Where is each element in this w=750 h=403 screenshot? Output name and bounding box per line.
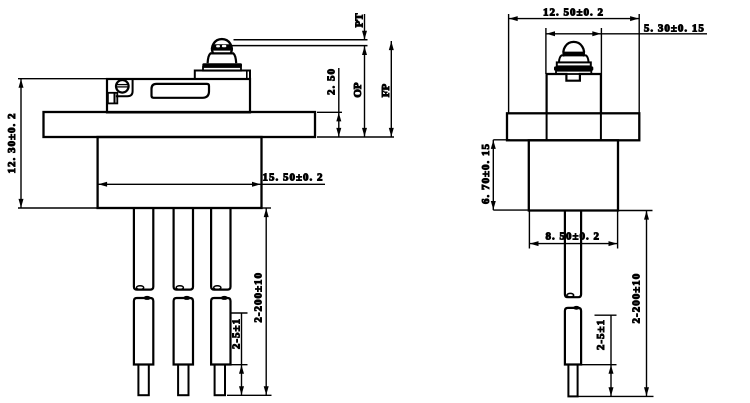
- svg-text:2-200±10: 2-200±10: [631, 273, 643, 324]
- svg-text:8. 50±0. 2: 8. 50±0. 2: [546, 230, 601, 242]
- svg-text:15. 50±0. 2: 15. 50±0. 2: [262, 171, 323, 183]
- svg-text:12. 30±0. 2: 12. 30±0. 2: [6, 112, 18, 173]
- svg-text:OP: OP: [352, 82, 364, 98]
- svg-text:12. 50±0. 2: 12. 50±0. 2: [543, 7, 604, 19]
- svg-text:2-5±1: 2-5±1: [230, 318, 242, 349]
- svg-text:2-5±1: 2-5±1: [595, 319, 607, 350]
- svg-text:FP: FP: [380, 84, 392, 98]
- svg-text:2. 50: 2. 50: [325, 68, 337, 95]
- svg-text:6. 70±0. 15: 6. 70±0. 15: [480, 143, 492, 204]
- svg-text:PT: PT: [354, 13, 366, 28]
- svg-text:5. 30±0. 15: 5. 30±0. 15: [644, 23, 705, 35]
- svg-text:2-200±10: 2-200±10: [253, 272, 265, 323]
